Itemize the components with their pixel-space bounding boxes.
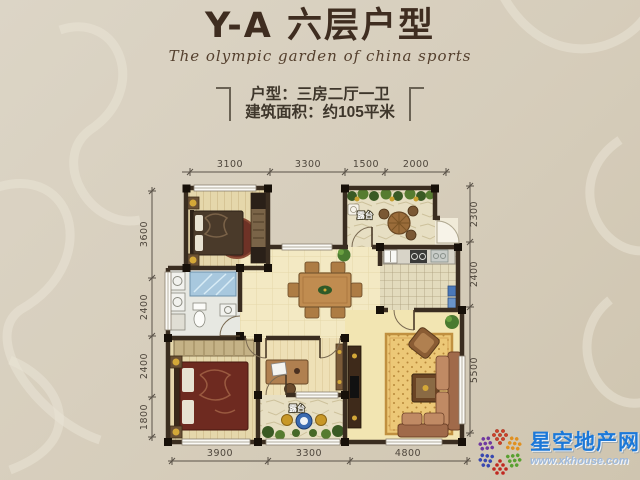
- plant: [309, 429, 317, 437]
- sofa-back: [398, 424, 448, 437]
- dim-bottom-1: 3900: [207, 448, 233, 459]
- dim-left-2: 2400: [139, 294, 150, 320]
- site-url: www.xkhouse.com: [530, 451, 640, 471]
- lamp: [173, 359, 180, 366]
- dish-rack: [448, 298, 456, 308]
- lamp: [173, 429, 180, 436]
- sofa-cushion: [436, 356, 449, 390]
- dim-bottom-2: 3300: [296, 448, 322, 459]
- desk-item: [294, 368, 300, 374]
- dim-bottom-3: 4800: [395, 448, 421, 459]
- watermark-text: 星空地产网 www.xkhouse.com: [530, 433, 640, 471]
- pinwheel-logo-icon: [474, 426, 526, 478]
- washing-machine: [170, 272, 185, 290]
- plant: [332, 425, 344, 437]
- master-bedroom-furniture: [170, 340, 254, 438]
- plant: [262, 426, 274, 438]
- dim-right-2: 2400: [469, 261, 480, 287]
- dryer: [170, 293, 185, 311]
- dim-top-4: 2000: [403, 159, 429, 170]
- pillow: [195, 215, 203, 231]
- dish-rack: [448, 286, 456, 296]
- lamp: [190, 257, 197, 264]
- sofa-cushion: [402, 413, 422, 425]
- tv: [350, 376, 359, 398]
- floor-plan: 露台 露台: [0, 0, 640, 480]
- plant: [275, 430, 285, 440]
- dim-left-3: 2400: [139, 353, 150, 379]
- dining-chair: [288, 283, 299, 297]
- dim-top-1: 3100: [217, 159, 243, 170]
- dim-right-3: 5500: [469, 357, 480, 383]
- dim-right-1: 2300: [469, 201, 480, 227]
- floorplan-page: Y-A 六层户型 The olympic garden of china spo…: [0, 0, 640, 480]
- gold-pot: [316, 415, 327, 426]
- stove: [410, 250, 427, 263]
- watermark: 星空地产网 www.xkhouse.com: [474, 426, 640, 478]
- dim-left-4: 1800: [139, 404, 150, 430]
- plant: [292, 429, 300, 437]
- sofa-cushion: [424, 413, 444, 425]
- plant: [321, 429, 331, 439]
- laptop: [271, 362, 287, 376]
- terrace-top-label: 露台: [357, 210, 373, 220]
- lamp: [190, 200, 197, 207]
- dining-chair: [331, 307, 345, 318]
- dining-chair: [305, 307, 319, 318]
- pillow: [182, 368, 194, 392]
- gold-pot: [282, 415, 293, 426]
- dim-left-1: 3600: [139, 221, 150, 247]
- dining-chair: [331, 262, 345, 273]
- terrace-chair: [408, 206, 418, 216]
- sink: [220, 304, 236, 316]
- terrace-chair: [406, 230, 416, 240]
- site-name: 星空地产网: [530, 433, 640, 453]
- cabinet: [170, 314, 185, 330]
- dining-chair: [351, 283, 362, 297]
- bed-headboard: [174, 364, 180, 428]
- dim-top-2: 3300: [295, 159, 321, 170]
- toilet: [194, 311, 205, 327]
- dim-top-3: 1500: [353, 159, 379, 170]
- terrace-chair: [379, 209, 389, 219]
- shower: [190, 272, 236, 296]
- dining-chair: [305, 262, 319, 273]
- pillow: [195, 235, 203, 251]
- pillow: [182, 400, 194, 424]
- terrace-bottom-label: 露台: [289, 403, 305, 413]
- toilet-tank: [193, 303, 206, 310]
